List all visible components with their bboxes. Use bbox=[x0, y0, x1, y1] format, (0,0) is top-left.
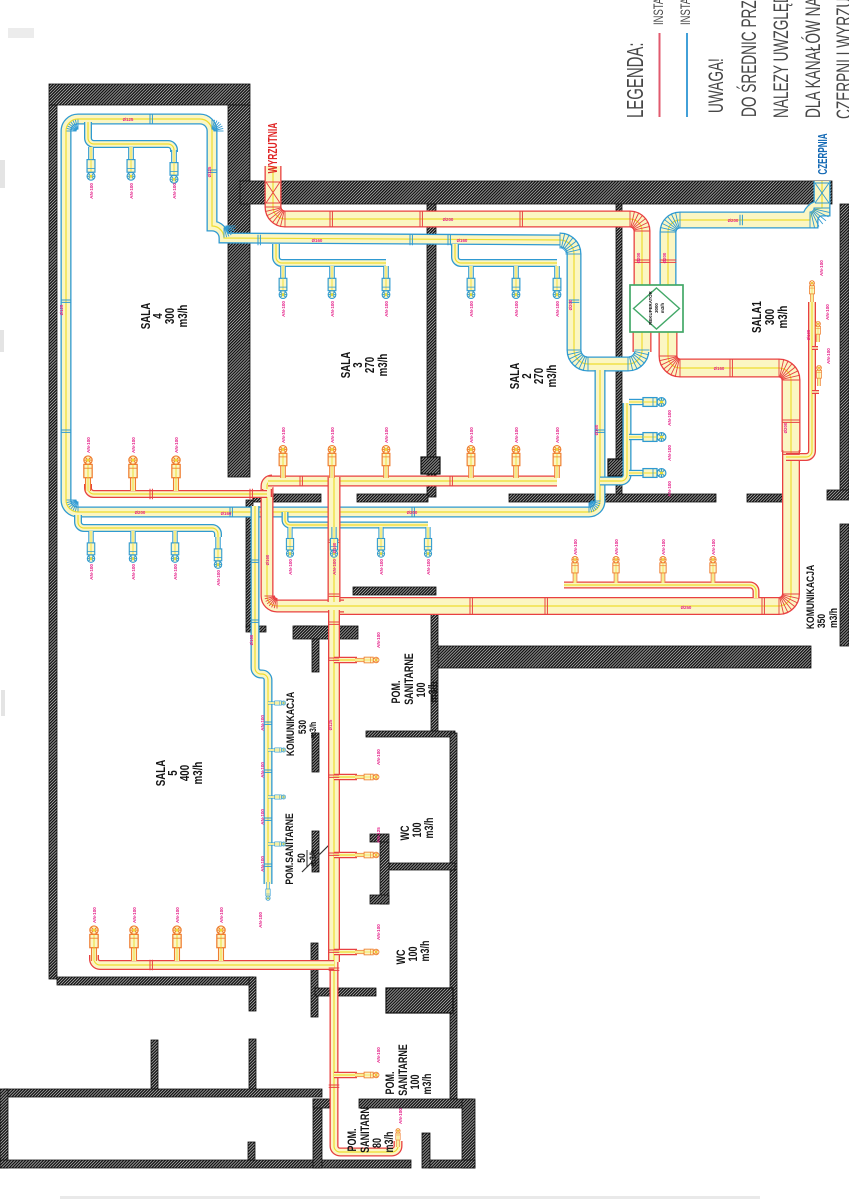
svg-text:UWAGA!: UWAGA! bbox=[704, 58, 728, 113]
svg-text:Ø160: Ø160 bbox=[221, 511, 232, 516]
svg-text:100: 100 bbox=[408, 946, 420, 961]
svg-text:AN-100: AN-100 bbox=[132, 907, 137, 923]
svg-text:Ø100: Ø100 bbox=[806, 329, 811, 340]
svg-text:AN-100: AN-100 bbox=[555, 427, 560, 443]
svg-text:Ø160: Ø160 bbox=[457, 238, 468, 243]
svg-text:AN-100: AN-100 bbox=[469, 301, 474, 317]
svg-text:POM.: POM. bbox=[347, 1128, 359, 1151]
svg-text:m3/h: m3/h bbox=[192, 762, 205, 785]
svg-text:Ø200: Ø200 bbox=[783, 422, 788, 433]
svg-text:AN-100: AN-100 bbox=[260, 762, 265, 778]
svg-text:SANITARN: SANITARN bbox=[360, 1107, 372, 1153]
svg-text:DO ŚREDNIC PRZEWODÓW: DO ŚREDNIC PRZEWODÓW bbox=[736, 0, 761, 117]
svg-text:WC: WC bbox=[400, 825, 412, 840]
svg-text:POM.: POM. bbox=[385, 1071, 397, 1094]
svg-text:m3/h: m3/h bbox=[377, 354, 390, 377]
svg-text:AN-100: AN-100 bbox=[376, 1047, 381, 1063]
svg-text:AN-100: AN-100 bbox=[379, 559, 384, 575]
svg-text:AN-100: AN-100 bbox=[661, 539, 666, 555]
svg-text:m3/h: m3/h bbox=[428, 682, 440, 703]
svg-text:AN-100: AN-100 bbox=[819, 260, 824, 276]
svg-text:300: 300 bbox=[764, 309, 777, 325]
svg-text:AN-100: AN-100 bbox=[398, 1108, 403, 1124]
svg-text:Ø200: Ø200 bbox=[728, 218, 739, 223]
svg-text:Ø160: Ø160 bbox=[249, 634, 254, 645]
svg-text:AN-100: AN-100 bbox=[376, 924, 381, 940]
svg-text:m3/h: m3/h bbox=[777, 306, 790, 329]
svg-text:AN-100: AN-100 bbox=[260, 715, 265, 731]
svg-text:AN-100: AN-100 bbox=[667, 445, 672, 461]
svg-text:POM.: POM. bbox=[391, 680, 403, 703]
svg-text:LEGENDA:: LEGENDA: bbox=[623, 42, 649, 118]
svg-text:350: 350 bbox=[816, 613, 828, 628]
svg-text:AN-100: AN-100 bbox=[174, 437, 179, 453]
svg-text:CZERPNI I WYRZUTNI.: CZERPNI I WYRZUTNI. bbox=[832, 0, 849, 119]
svg-text:AN-100: AN-100 bbox=[281, 301, 286, 317]
svg-text:SANITARNE: SANITARNE bbox=[404, 653, 416, 705]
svg-text:AN-100: AN-100 bbox=[92, 907, 97, 923]
svg-text:INSTALACJA WYWIEWNA: INSTALACJA WYWIEWNA bbox=[678, 0, 693, 25]
svg-text:AN-100: AN-100 bbox=[825, 304, 830, 320]
svg-text:Ø200: Ø200 bbox=[135, 510, 146, 515]
svg-text:AN-100: AN-100 bbox=[332, 559, 337, 575]
svg-text:AN-100: AN-100 bbox=[216, 570, 221, 586]
svg-text:AN-100: AN-100 bbox=[376, 749, 381, 765]
svg-text:AN-100: AN-100 bbox=[173, 564, 178, 580]
svg-text:AN-100: AN-100 bbox=[376, 632, 381, 648]
svg-text:AN-100: AN-100 bbox=[330, 301, 335, 317]
svg-text:AN-100: AN-100 bbox=[129, 183, 134, 199]
svg-text:m3/h: m3/h bbox=[828, 608, 840, 628]
svg-text:Ø200: Ø200 bbox=[407, 510, 418, 515]
svg-text:AN-100: AN-100 bbox=[826, 348, 831, 364]
svg-text:WYRZUTNIA: WYRZUTNIA bbox=[266, 123, 280, 174]
svg-text:100: 100 bbox=[410, 1074, 422, 1089]
svg-text:AN-100: AN-100 bbox=[258, 912, 263, 928]
svg-text:REKUPERATOR: REKUPERATOR bbox=[648, 290, 653, 324]
svg-text:AN-100: AN-100 bbox=[469, 427, 474, 443]
svg-text:AN-100: AN-100 bbox=[667, 410, 672, 426]
svg-text:m3/h: m3/h bbox=[177, 305, 190, 328]
svg-text:m3/h: m3/h bbox=[546, 365, 559, 388]
svg-text:AN-100: AN-100 bbox=[172, 183, 177, 199]
svg-text:m3/h: m3/h bbox=[420, 941, 432, 962]
svg-text:CZERPNIA: CZERPNIA bbox=[816, 133, 830, 174]
svg-text:270: 270 bbox=[533, 368, 546, 384]
svg-text:SANITARNE: SANITARNE bbox=[398, 1044, 410, 1096]
svg-text:Ø200: Ø200 bbox=[443, 217, 454, 222]
svg-text:AN-100: AN-100 bbox=[711, 539, 716, 555]
svg-text:WC: WC bbox=[396, 949, 408, 964]
svg-text:AN-100: AN-100 bbox=[667, 481, 672, 497]
svg-text:AN-100: AN-100 bbox=[384, 427, 389, 443]
svg-text:AN-100: AN-100 bbox=[260, 809, 265, 825]
svg-text:AN-100: AN-100 bbox=[260, 856, 265, 872]
svg-text:m3/h: m3/h bbox=[660, 303, 665, 314]
svg-text:AN-100: AN-100 bbox=[573, 539, 578, 555]
svg-text:m3/h: m3/h bbox=[308, 850, 318, 866]
svg-text:AN-100: AN-100 bbox=[86, 437, 91, 453]
svg-text:100: 100 bbox=[416, 682, 428, 697]
svg-text:Ø160: Ø160 bbox=[312, 238, 323, 243]
svg-text:AN-100: AN-100 bbox=[555, 301, 560, 317]
svg-text:AN-100: AN-100 bbox=[175, 907, 180, 923]
svg-text:POM.SANITARNE: POM.SANITARNE bbox=[284, 813, 296, 885]
svg-text:3000: 3000 bbox=[654, 303, 659, 313]
svg-text:AN-100: AN-100 bbox=[281, 427, 286, 443]
svg-text:Ø200: Ø200 bbox=[636, 252, 641, 263]
svg-text:m3/h: m3/h bbox=[422, 1074, 434, 1095]
svg-text:Ø125: Ø125 bbox=[59, 304, 64, 315]
svg-text:AN-100: AN-100 bbox=[426, 559, 431, 575]
svg-text:Ø200: Ø200 bbox=[662, 252, 667, 263]
svg-text:Ø160: Ø160 bbox=[265, 554, 270, 565]
svg-text:100: 100 bbox=[412, 822, 424, 837]
svg-text:Ø125: Ø125 bbox=[123, 117, 134, 122]
svg-text:AN-100: AN-100 bbox=[514, 427, 519, 443]
svg-text:400: 400 bbox=[179, 765, 192, 781]
svg-text:AN-100: AN-100 bbox=[131, 564, 136, 580]
svg-text:Ø125: Ø125 bbox=[207, 166, 212, 177]
svg-text:INSTALACJA NAWIEWNA: INSTALACJA NAWIEWNA bbox=[651, 0, 666, 25]
svg-text:AN-125: AN-125 bbox=[376, 827, 381, 843]
svg-text:AN-100: AN-100 bbox=[89, 564, 94, 580]
svg-text:Ø250: Ø250 bbox=[681, 605, 692, 610]
svg-text:AN-100: AN-100 bbox=[514, 301, 519, 317]
svg-text:80: 80 bbox=[372, 1138, 384, 1148]
svg-text:Ø200: Ø200 bbox=[568, 299, 573, 310]
svg-text:NALEZY UWZGLĘDNIĆ GRUBOŚĆ: NALEZY UWZGLĘDNIĆ GRUBOŚĆ bbox=[768, 0, 793, 118]
svg-text:Ø160: Ø160 bbox=[332, 542, 337, 553]
svg-text:AN-100: AN-100 bbox=[131, 437, 136, 453]
svg-text:DLA KANAŁÓW NAWIEWNYCH: DLA KANAŁÓW NAWIEWNYCH bbox=[800, 0, 825, 118]
svg-text:SALA1: SALA1 bbox=[751, 301, 764, 333]
svg-text:AN-100: AN-100 bbox=[288, 559, 293, 575]
svg-text:AN-100: AN-100 bbox=[89, 183, 94, 199]
svg-text:m3/h: m3/h bbox=[384, 1132, 396, 1153]
svg-text:300: 300 bbox=[164, 308, 177, 324]
svg-text:Ø125: Ø125 bbox=[328, 719, 333, 730]
svg-text:m3/h: m3/h bbox=[424, 818, 436, 839]
svg-text:KOMUNIKACJA: KOMUNIKACJA bbox=[285, 692, 297, 756]
svg-text:Ø160: Ø160 bbox=[714, 366, 725, 371]
svg-text:m3/h: m3/h bbox=[308, 722, 318, 738]
svg-text:AN-100: AN-100 bbox=[384, 301, 389, 317]
svg-text:Ø160: Ø160 bbox=[594, 424, 599, 435]
svg-text:AN-100: AN-100 bbox=[614, 539, 619, 555]
svg-text:AN-100: AN-100 bbox=[219, 907, 224, 923]
svg-text:270: 270 bbox=[364, 357, 377, 373]
svg-text:AN-100: AN-100 bbox=[330, 427, 335, 443]
svg-text:50: 50 bbox=[296, 853, 308, 863]
